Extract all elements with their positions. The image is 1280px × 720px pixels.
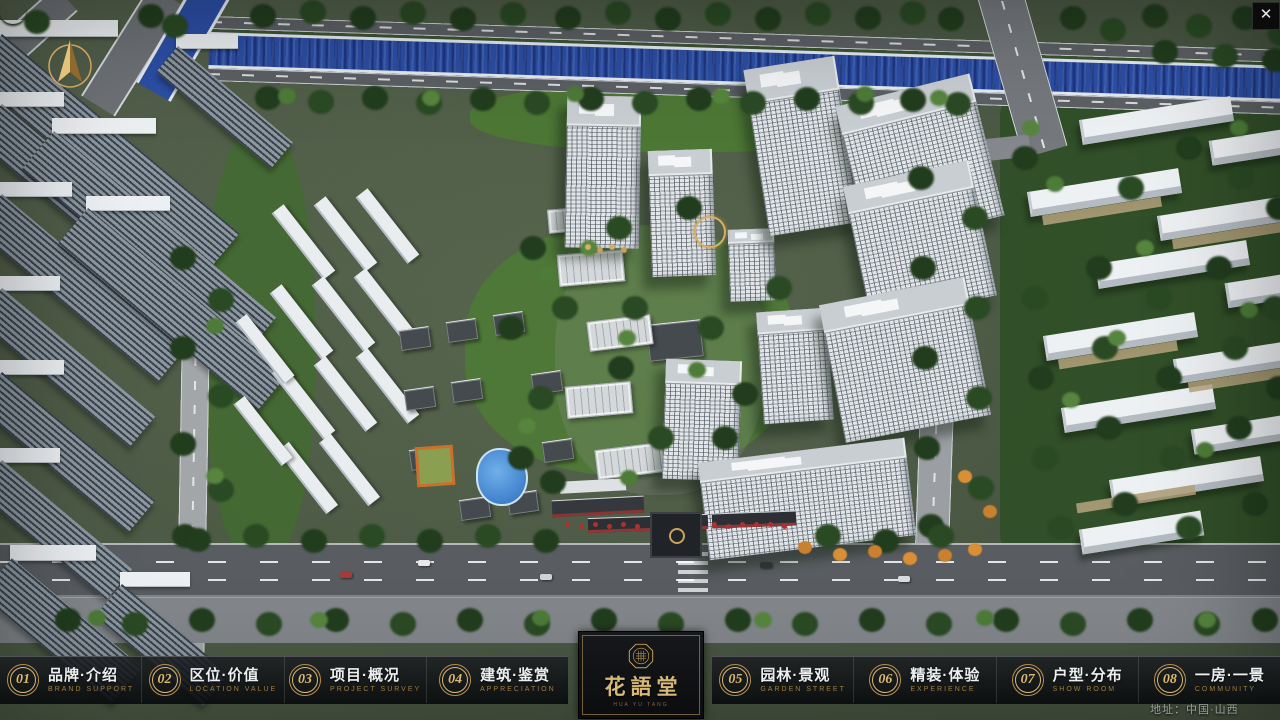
- nav-sublabel: EXPERIENCE: [910, 686, 975, 694]
- masterplan-render: [0, 0, 1280, 720]
- villa: [399, 326, 432, 351]
- nav-sublabel: APPRECIATION: [480, 686, 556, 694]
- nav-item-brand[interactable]: 01 品牌·介绍 BRAND SUPPORT: [0, 657, 141, 703]
- car: [760, 562, 772, 568]
- nav-label: 建筑·鉴赏: [480, 667, 550, 684]
- nav-number-badge: 06: [869, 664, 901, 696]
- close-button[interactable]: ✕: [1252, 2, 1280, 30]
- nav-label: 区位·价值: [190, 667, 260, 684]
- nav-label: 一房·一景: [1195, 667, 1265, 684]
- slab-roof: [52, 118, 156, 134]
- tower: [648, 149, 716, 277]
- car: [540, 574, 552, 580]
- villa: [451, 378, 484, 403]
- slab-roof: [0, 360, 64, 375]
- tower: [728, 228, 776, 302]
- nav-item-location[interactable]: 02 区位·价值 LOCATION VALUE: [141, 657, 283, 703]
- nav-number-badge: 02: [149, 664, 181, 696]
- tower: [565, 95, 642, 248]
- car: [898, 576, 910, 582]
- nav-bar-right: 05 园林·景观 GARDEN STREET 06 精装·体验 EXPERIEN…: [712, 656, 1280, 704]
- car: [418, 560, 430, 566]
- nav-item-project[interactable]: 03 项目·概况 PROJECT SURVEY: [284, 657, 426, 703]
- midrise: [557, 249, 626, 287]
- nav-label: 户型·分布: [1053, 667, 1123, 684]
- nav-label: 项目·概况: [330, 667, 400, 684]
- compass-icon: [42, 34, 98, 94]
- villa: [542, 438, 575, 463]
- slab-roof: [86, 196, 170, 211]
- nav-number-badge: 01: [7, 664, 39, 696]
- seal-emblem-icon: [628, 643, 654, 669]
- nav-number-badge: 03: [289, 664, 321, 696]
- canopy: [560, 478, 627, 493]
- nav-item-garden[interactable]: 05 园林·景观 GARDEN STREET: [712, 657, 853, 703]
- nav-item-architecture[interactable]: 04 建筑·鉴赏 APPRECIATION: [426, 657, 568, 703]
- nav-item-view[interactable]: 08 一房·一景 COMMUNITY: [1138, 657, 1280, 703]
- villa: [404, 386, 437, 411]
- nav-label: 精装·体验: [910, 667, 980, 684]
- nav-number-badge: 04: [439, 664, 471, 696]
- street-shop: [712, 511, 796, 529]
- nav-bar-left: 01 品牌·介绍 BRAND SUPPORT 02 区位·价值 LOCATION…: [0, 656, 568, 704]
- street-shop: [552, 496, 645, 518]
- logo-title: 花語堂: [605, 671, 683, 701]
- slab-roof: [0, 276, 60, 291]
- nav-sublabel: COMMUNITY: [1195, 686, 1256, 694]
- entrance-gate: [650, 512, 702, 558]
- midrise: [565, 381, 634, 419]
- logo-panel[interactable]: 花語堂 HUA YU TANG: [578, 631, 704, 719]
- slab-roof: [10, 545, 96, 561]
- villa: [493, 311, 526, 336]
- tower: [819, 277, 991, 443]
- villa: [531, 370, 564, 395]
- gold-plaza: [694, 216, 726, 248]
- logo-frame: 花語堂 HUA YU TANG: [582, 635, 700, 715]
- nav-number-badge: 05: [719, 664, 751, 696]
- villa: [446, 318, 479, 343]
- presentation-window: ✕ 01 品牌·介绍 BRAND SUPPORT 02 区位·价值 LOCATI…: [0, 0, 1280, 720]
- car: [340, 572, 352, 578]
- nav-sublabel: GARDEN STREET: [760, 686, 846, 694]
- nav-label: 园林·景观: [760, 667, 830, 684]
- nav-label: 品牌·介绍: [48, 667, 118, 684]
- main-road: [0, 543, 1280, 643]
- project-address: 地址：中国·山西: [1150, 701, 1239, 717]
- clubhouse: [646, 319, 704, 361]
- nav-sublabel: LOCATION VALUE: [190, 686, 278, 694]
- nav-sublabel: SHOW ROOM: [1053, 686, 1117, 694]
- orange-roof-building: [415, 445, 456, 488]
- swimming-pool: [476, 448, 528, 506]
- nav-number-badge: 08: [1154, 664, 1186, 696]
- slab-roof: [0, 182, 72, 197]
- slab-roof: [120, 572, 190, 587]
- nav-sublabel: PROJECT SURVEY: [330, 686, 421, 694]
- logo-subtitle: HUA YU TANG: [613, 702, 668, 708]
- nav-sublabel: BRAND SUPPORT: [48, 686, 134, 694]
- nav-item-experience[interactable]: 06 精装·体验 EXPERIENCE: [853, 657, 995, 703]
- slab-roof: [0, 92, 64, 107]
- slab-roof: [176, 34, 238, 49]
- nav-number-badge: 07: [1012, 664, 1044, 696]
- gold-ornaments: [0, 0, 6, 6]
- nav-item-floorplan[interactable]: 07 户型·分布 SHOW ROOM: [996, 657, 1138, 703]
- slab-roof: [0, 448, 60, 463]
